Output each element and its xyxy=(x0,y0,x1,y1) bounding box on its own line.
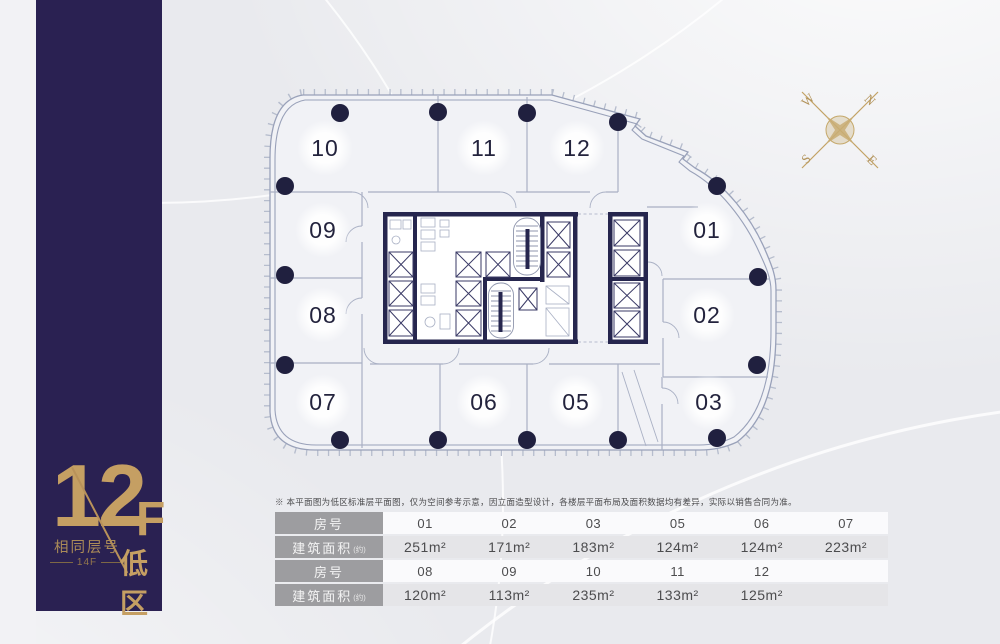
structural-column-dot xyxy=(276,356,294,374)
unit-number-label: 08 xyxy=(292,287,354,343)
unit-number-label: 05 xyxy=(545,374,607,430)
compass-east-label: E xyxy=(864,152,880,168)
table-cell: 124m² xyxy=(720,536,804,558)
unit-number-label: 02 xyxy=(676,287,738,343)
floor-banner: 12 F 相同层号 14F 低区 xyxy=(36,0,162,611)
unit-number-label: 10 xyxy=(294,120,356,176)
service-core xyxy=(383,212,648,344)
floor-suffix: F xyxy=(136,496,165,544)
table-cell: 124m² xyxy=(636,536,720,558)
row-label: 建筑面积(约) xyxy=(275,536,383,558)
table-cell: 11 xyxy=(636,560,720,582)
same-floor-value: 14F xyxy=(50,557,124,568)
compass: N W S E xyxy=(798,90,880,168)
table-cell: 113m² xyxy=(467,584,551,606)
structural-column-dot xyxy=(331,431,349,449)
structural-column-dot xyxy=(609,113,627,131)
table-cell: 183m² xyxy=(551,536,635,558)
structural-column-dot xyxy=(276,266,294,284)
table-cell: 06 xyxy=(720,512,804,534)
floor-number: 12 xyxy=(52,452,144,540)
table-cell: 05 xyxy=(636,512,720,534)
table-cell: 251m² xyxy=(383,536,467,558)
structural-column-dot xyxy=(518,431,536,449)
row-label: 房号 xyxy=(275,512,383,534)
unit-number-label: 09 xyxy=(292,202,354,258)
zone-label: 低区 xyxy=(120,542,162,622)
row-label-suffix: (约) xyxy=(353,544,366,555)
table-cell: 07 xyxy=(804,512,888,534)
table-cell: 120m² xyxy=(383,584,467,606)
table-cell: 133m² xyxy=(636,584,720,606)
structural-column-dot xyxy=(708,429,726,447)
unit-number-label: 11 xyxy=(453,120,515,176)
structural-column-dot xyxy=(429,103,447,121)
structural-column-dot xyxy=(518,104,536,122)
unit-number-label: 01 xyxy=(676,202,738,258)
same-floor-label: 相同层号 xyxy=(50,536,124,557)
table-cell: 02 xyxy=(467,512,551,534)
unit-number-label: 07 xyxy=(292,374,354,430)
compass-west-label: W xyxy=(798,90,818,110)
unit-number-label: 03 xyxy=(678,374,740,430)
same-floor-number: 14F xyxy=(77,557,97,568)
table-row: 房号0809101112 xyxy=(275,560,888,582)
structural-column-dot xyxy=(429,431,447,449)
row-label: 房号 xyxy=(275,560,383,582)
table-cell: 09 xyxy=(467,560,551,582)
table-cell: 10 xyxy=(551,560,635,582)
table-cell: 235m² xyxy=(551,584,635,606)
table-cell: 223m² xyxy=(804,536,888,558)
table-cell: 171m² xyxy=(467,536,551,558)
unit-number-label: 12 xyxy=(546,120,608,176)
poster-page: N W S E 1011120901080207060503 12 F 相同层号… xyxy=(0,0,1000,644)
unit-number-label: 06 xyxy=(453,374,515,430)
row-label-suffix: (约) xyxy=(353,592,366,603)
structural-column-dot xyxy=(749,268,767,286)
row-label: 建筑面积(约) xyxy=(275,584,383,606)
table-row: 房号010203050607 xyxy=(275,512,888,534)
table-cell xyxy=(804,584,888,606)
structural-column-dot xyxy=(276,177,294,195)
structural-column-dot xyxy=(609,431,627,449)
area-table: 房号010203050607建筑面积(约)251m²171m²183m²124m… xyxy=(275,512,888,608)
table-cell: 125m² xyxy=(720,584,804,606)
table-row: 建筑面积(约)251m²171m²183m²124m²124m²223m² xyxy=(275,536,888,558)
plan-note: ※ 本平面图为低区标准层平面图，仅为空间参考示意，因立面造型设计，各楼层平面布局… xyxy=(275,496,797,508)
structural-column-dot xyxy=(748,356,766,374)
table-cell xyxy=(804,560,888,582)
table-cell: 01 xyxy=(383,512,467,534)
decorative-line xyxy=(50,562,73,563)
table-row: 建筑面积(约)120m²113m²235m²133m²125m² xyxy=(275,584,888,606)
table-cell: 08 xyxy=(383,560,467,582)
table-cell: 12 xyxy=(720,560,804,582)
structural-column-dot xyxy=(708,177,726,195)
table-cell: 03 xyxy=(551,512,635,534)
